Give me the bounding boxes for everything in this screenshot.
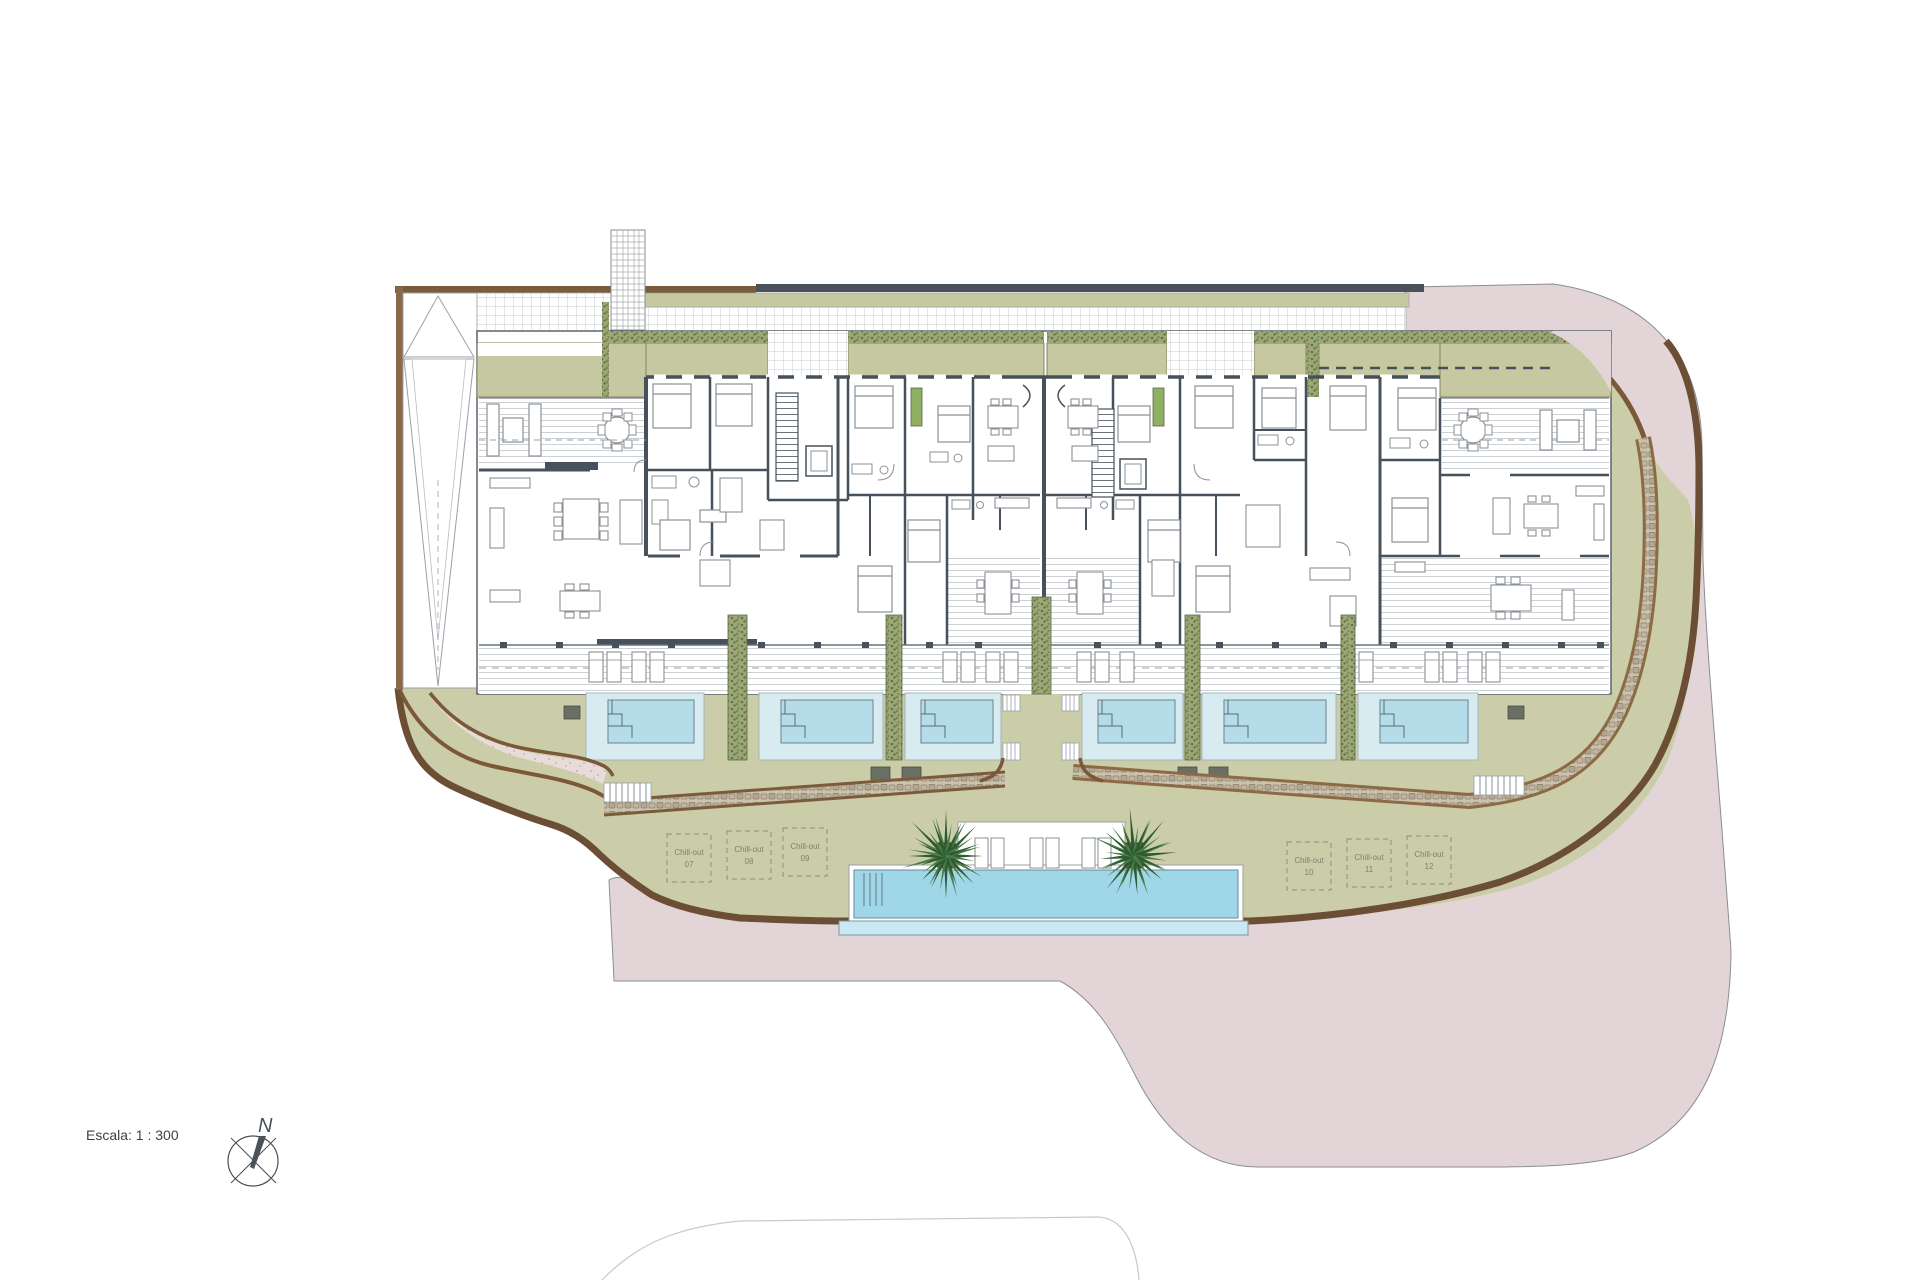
- svg-text:10: 10: [1305, 868, 1314, 877]
- svg-text:08: 08: [745, 857, 754, 866]
- svg-text:Chill-out: Chill-out: [734, 845, 764, 854]
- svg-text:Chill-out: Chill-out: [1414, 850, 1444, 859]
- svg-text:07: 07: [685, 860, 694, 869]
- svg-text:Chill-out: Chill-out: [790, 842, 820, 851]
- svg-text:Chill-out: Chill-out: [1294, 856, 1324, 865]
- svg-text:11: 11: [1365, 865, 1374, 874]
- svg-text:Chill-out: Chill-out: [674, 848, 704, 857]
- svg-text:N: N: [258, 1115, 273, 1137]
- svg-text:09: 09: [801, 854, 810, 863]
- svg-text:12: 12: [1425, 862, 1434, 871]
- svg-text:Chill-out: Chill-out: [1354, 853, 1384, 862]
- svg-text:Escala: 1 : 300: Escala: 1 : 300: [86, 1127, 179, 1143]
